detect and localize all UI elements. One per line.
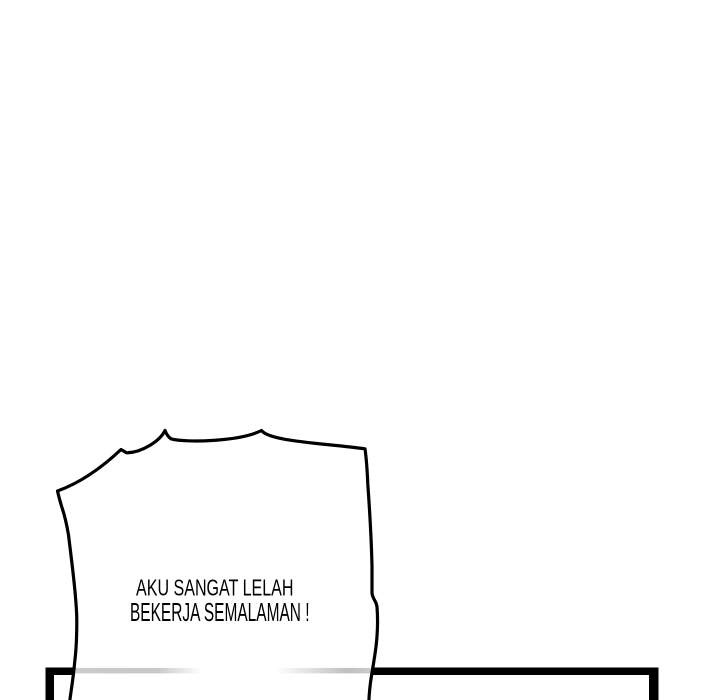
svg-text:BEKERJA SEMALAMAN !: BEKERJA SEMALAMAN ! bbox=[130, 597, 310, 627]
